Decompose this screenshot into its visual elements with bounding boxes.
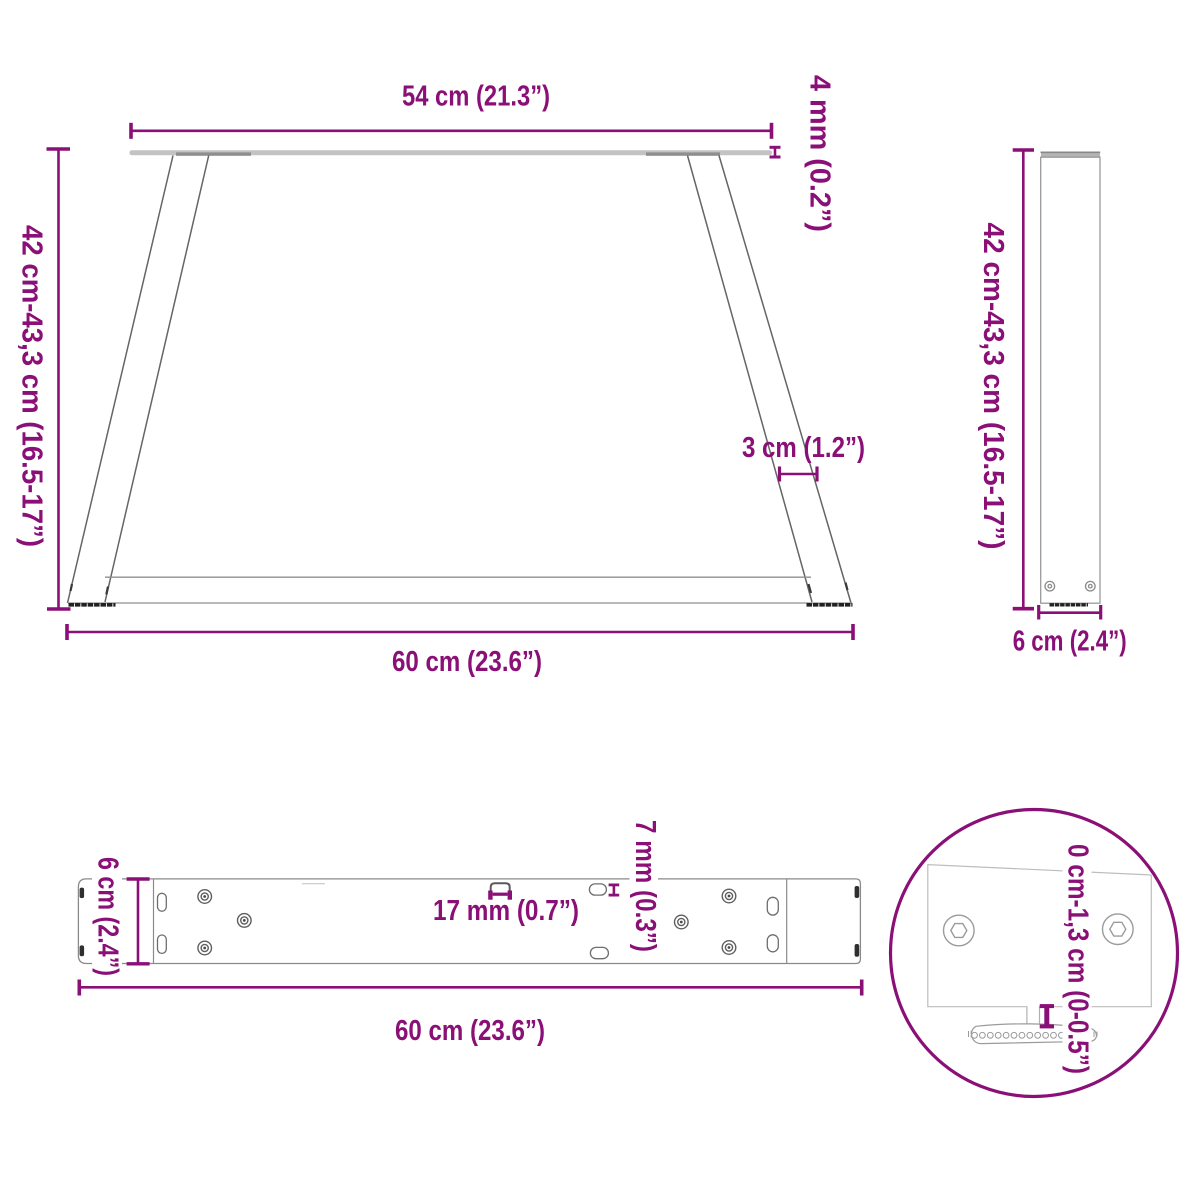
svg-text:54 cm (21.3”): 54 cm (21.3”) [402,81,550,113]
svg-text:7 mm (0.3”): 7 mm (0.3”) [629,820,661,952]
svg-text:3 cm (1.2”): 3 cm (1.2”) [742,432,865,464]
svg-text:0 cm-1,3 cm (0-0.5”): 0 cm-1,3 cm (0-0.5”) [1061,844,1093,1074]
svg-text:4 mm (0.2”): 4 mm (0.2”) [804,75,836,232]
svg-text:6 cm (2.4”): 6 cm (2.4”) [92,857,124,976]
svg-text:17 mm (0.7”): 17 mm (0.7”) [433,895,579,927]
svg-text:42 cm-43,3 cm (16.5-17”): 42 cm-43,3 cm (16.5-17”) [15,225,47,547]
svg-text:6 cm (2.4”): 6 cm (2.4”) [1013,626,1127,658]
svg-text:60 cm (23.6”): 60 cm (23.6”) [392,646,542,678]
svg-text:60 cm (23.6”): 60 cm (23.6”) [395,1015,545,1047]
svg-text:42 cm-43,3 cm (16.5-17”): 42 cm-43,3 cm (16.5-17”) [977,223,1009,550]
